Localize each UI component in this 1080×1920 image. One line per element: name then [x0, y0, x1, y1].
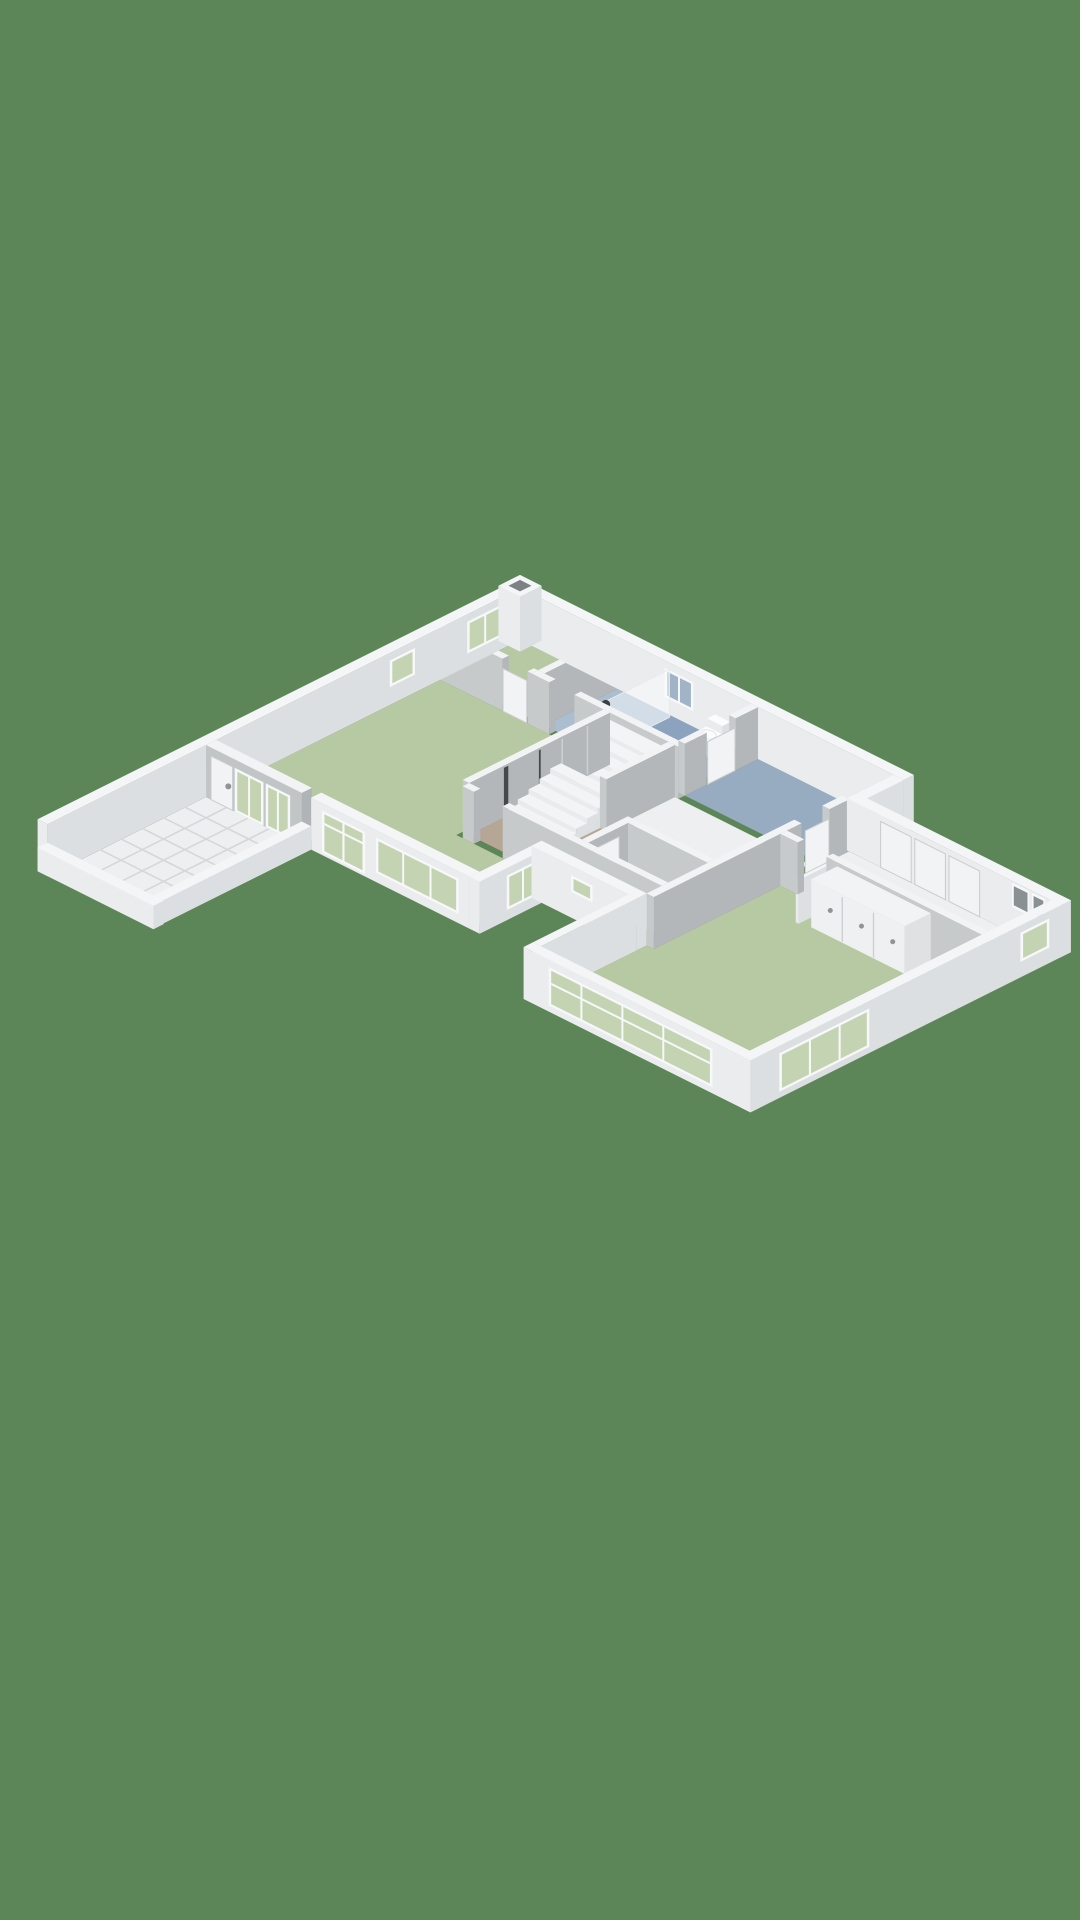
window-mullion [430, 866, 432, 898]
wall-face-se [750, 1056, 759, 1113]
chimney-face-se [520, 586, 542, 652]
window-mullion [662, 1026, 664, 1061]
wall-face-sw [528, 671, 532, 725]
wall-face-se [685, 733, 707, 796]
wall-face-se [736, 707, 758, 770]
window-mullion [248, 777, 250, 818]
closet-handle-icon [828, 908, 833, 913]
closet-handle-icon [890, 939, 895, 944]
window-mullion [621, 1005, 623, 1040]
door-handle-icon [225, 783, 231, 789]
floorplan-3d-render [0, 0, 1080, 1920]
floorplan-scene [0, 0, 1080, 1920]
window-mullion [342, 823, 344, 862]
window-mullion [678, 677, 680, 703]
panel-seam [587, 726, 589, 775]
window-mullion [522, 869, 524, 900]
window-mullion [484, 615, 486, 644]
wall-face-se [549, 679, 555, 734]
wall-face-se [798, 839, 804, 894]
window-mullion [277, 791, 279, 832]
wall-face-se [830, 799, 849, 861]
wall-face-sw [780, 834, 797, 895]
closet-seam [873, 912, 874, 958]
window-mullion [809, 1040, 811, 1075]
chimney-face-sw [498, 586, 520, 652]
wall-face-se [637, 893, 647, 950]
wall-face-sw [647, 893, 654, 949]
window-mullion [839, 1025, 841, 1060]
wall-face-sw [470, 877, 480, 934]
wall-face-sw [532, 673, 550, 734]
closet-seam [842, 897, 843, 943]
window-mullion [402, 853, 404, 885]
window-mullion [580, 985, 582, 1020]
wall-face-sw [600, 776, 607, 831]
closet-handle-icon [859, 924, 864, 929]
wall-face-sw [678, 740, 685, 795]
wall-face-sw [463, 786, 474, 844]
wall-face-se [474, 789, 481, 844]
